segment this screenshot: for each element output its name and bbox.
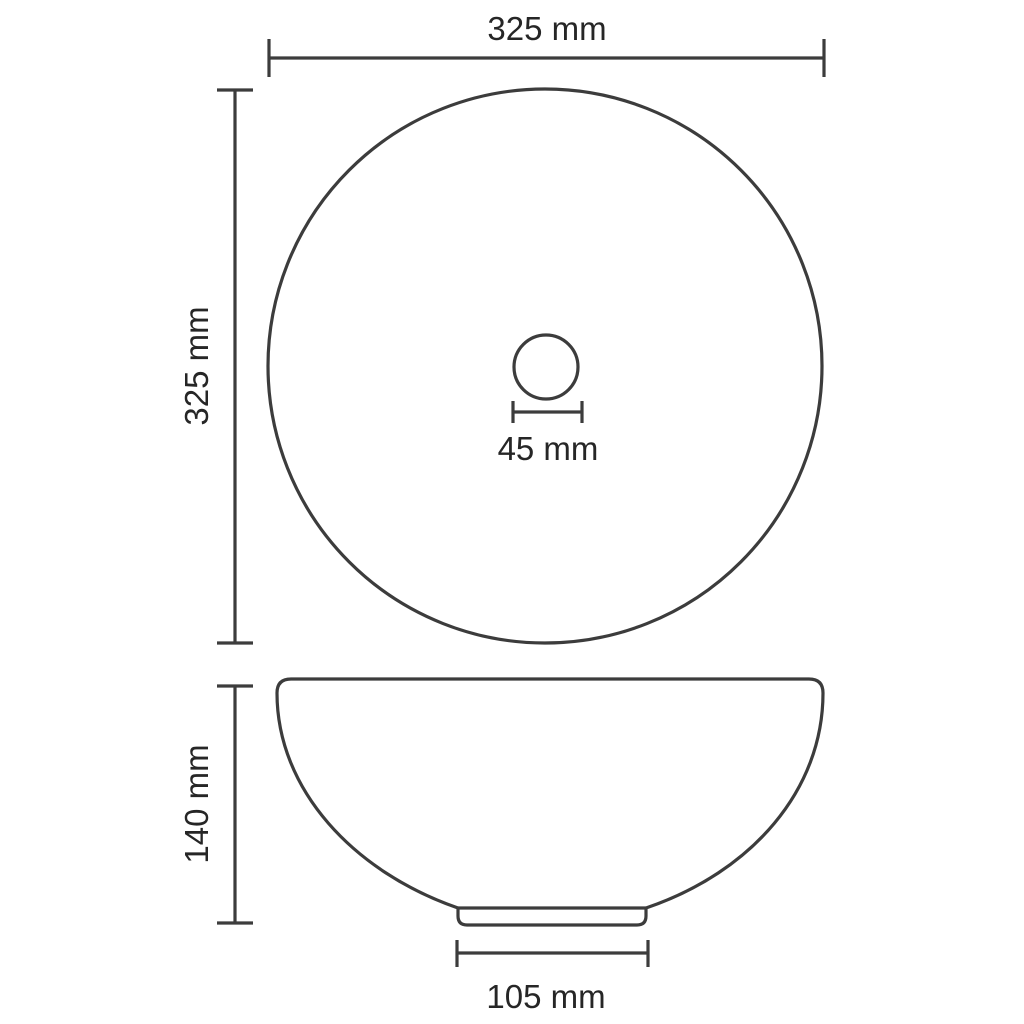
basin-dimension-diagram: 325 mm 325 mm 45 mm 140 mm 105 mm: [0, 0, 1024, 1024]
side-height-label: 140 mm: [178, 744, 215, 863]
left-height-label: 325 mm: [178, 306, 215, 425]
diagram-background: [0, 0, 1024, 1024]
drain-diameter-label: 45 mm: [498, 430, 599, 467]
base-width-label: 105 mm: [486, 978, 605, 1015]
top-width-label: 325 mm: [487, 10, 606, 47]
